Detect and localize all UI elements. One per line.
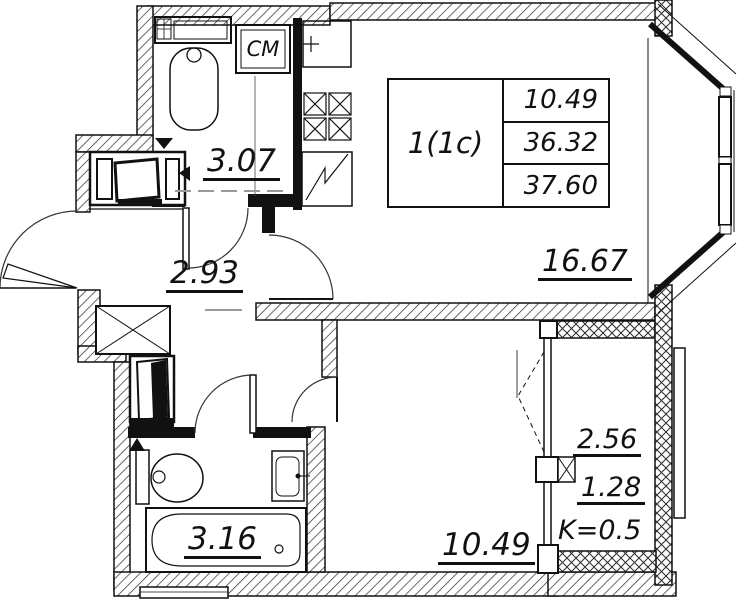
toilet-bottom-bowl	[151, 454, 203, 502]
toilet-bottom-tank	[136, 450, 149, 504]
room-area-hallway-value: 2.93	[166, 258, 243, 293]
vent-arrow-down-icon	[155, 138, 173, 149]
bay-window-frame-right-lower	[719, 164, 731, 225]
unit-area-living: 10.49	[504, 80, 608, 121]
balcony-coefficient: K=0.5	[558, 517, 641, 544]
toilet-bottom-flush	[153, 471, 165, 483]
vent-shaft	[96, 306, 170, 354]
entrance-shaft-cap	[118, 199, 162, 206]
balcony-area-reduced: 1.28	[577, 474, 645, 505]
bay-window-frame-diag-top	[650, 24, 729, 94]
floor-plan: СМ 3.07 2.93 16.67 3.16 10.49 2.56 1.28 …	[0, 0, 737, 600]
wall-kitchen-line	[293, 18, 302, 210]
wall-left-bottom	[114, 362, 130, 590]
balcony-area-reduced-value: 1.28	[577, 474, 645, 505]
burner-cross	[329, 118, 351, 140]
wall-bath-left	[137, 6, 153, 138]
balcony-wall-top	[553, 321, 655, 338]
room-area-bedroom: 10.49	[438, 530, 535, 565]
room-area-bathroom-top-value: 3.07	[203, 146, 280, 181]
bathtub-drain	[275, 545, 283, 553]
vent-arrow-up-icon	[129, 438, 145, 451]
washing-machine-label: СМ	[236, 25, 290, 73]
wall-bath2-right	[307, 427, 325, 572]
bay-window-sill-break	[719, 157, 731, 164]
room-area-bedroom-value: 10.49	[438, 530, 535, 565]
counter-outline	[302, 152, 352, 206]
bay-window	[648, 4, 736, 313]
partition-block-mid	[536, 457, 558, 482]
wall-bath2-top-right	[253, 427, 311, 438]
toilet-top-flush	[187, 48, 201, 62]
bathroom-bottom-door-arc	[195, 375, 253, 433]
balcony-wall-bottom	[548, 551, 656, 572]
entrance-shaft	[90, 152, 185, 206]
room-area-living-value: 16.67	[538, 247, 632, 281]
balcony-wall-right	[655, 285, 672, 585]
riser-shaft	[130, 356, 174, 429]
kitchen-counter-break	[302, 152, 352, 206]
unit-number: 1(1c)	[389, 80, 504, 206]
balcony-area-full-value: 2.56	[573, 426, 641, 457]
bay-window-frame-diag-bottom	[650, 228, 728, 297]
burner-cross	[304, 118, 326, 140]
partition-block-top	[540, 321, 557, 338]
wall-step-upper	[76, 135, 153, 152]
sink-bottom	[272, 451, 310, 501]
toilet-top-bowl	[170, 48, 218, 130]
kitchen-sink	[303, 21, 351, 67]
wall-bedroom-door-stub	[322, 320, 337, 377]
entrance-door-leaf	[3, 264, 77, 288]
riser-dark	[151, 360, 168, 419]
unit-area-total: 36.32	[504, 121, 608, 164]
toilet-bottom	[136, 450, 203, 504]
burner-cross	[329, 93, 351, 115]
toilet-top	[170, 48, 218, 130]
burner-cross	[304, 93, 326, 115]
unit-info-table: 1(1c) 10.49 36.32 37.60	[387, 78, 610, 208]
lower-floor-window	[140, 587, 228, 598]
balcony-outer-glazing	[674, 348, 685, 518]
room-area-bathroom-top: 3.07	[203, 146, 280, 181]
bedroom-door-arc	[292, 377, 337, 422]
unit-area-total-with-balcony: 37.60	[504, 163, 608, 206]
entrance-shaft-mid	[115, 159, 159, 201]
wall-top-right	[330, 3, 658, 20]
wall-left-entry	[76, 152, 90, 212]
living-door-arc	[269, 235, 333, 299]
counter-zigzag	[306, 154, 348, 200]
room-area-bathroom-bottom: 3.16	[184, 524, 261, 559]
window-opening-dash	[518, 352, 544, 452]
bay-window-frame-right-upper	[719, 97, 731, 157]
kitchen-stove	[304, 93, 351, 140]
riser-cap	[130, 418, 174, 429]
bay-joint-top	[720, 87, 731, 96]
sink-bottom-basin	[276, 457, 299, 496]
bay-joint-bottom	[720, 225, 731, 234]
wall-hall-stub	[262, 205, 275, 233]
bathroom-bottom-door-leaf	[250, 375, 256, 433]
room-area-living: 16.67	[538, 247, 632, 281]
room-area-bathroom-bottom-value: 3.16	[184, 524, 261, 559]
kitchen-faucet-cross-icon	[303, 36, 319, 52]
balcony-area-full: 2.56	[573, 426, 641, 457]
unit-areas-column: 10.49 36.32 37.60	[504, 80, 608, 206]
partition-block-bottom	[538, 545, 558, 573]
room-area-hallway: 2.93	[166, 258, 243, 293]
balcony-coefficient-value: K=0.5	[558, 515, 641, 546]
wall-living-bottom	[256, 303, 655, 320]
floor-plan-linework	[0, 0, 737, 600]
